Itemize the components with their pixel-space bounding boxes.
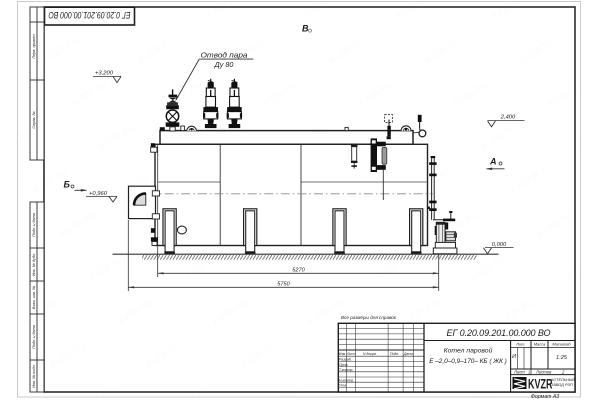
svg-text:Подп.: Подп.	[390, 352, 399, 356]
svg-text:И: И	[512, 354, 516, 360]
svg-text:N докум.: N докум.	[363, 352, 377, 356]
svg-text:KVZR: KVZR	[528, 376, 553, 391]
svg-text:В: В	[302, 24, 309, 34]
svg-text:Лист: Лист	[513, 369, 525, 374]
svg-text:Пров.: Пров.	[339, 363, 348, 367]
svg-text:А: А	[489, 157, 497, 167]
svg-text:Изм: Изм	[339, 352, 346, 356]
svg-text:Справ. №: Справ. №	[32, 111, 36, 128]
svg-text:Отвод пара: Отвод пара	[201, 51, 248, 60]
svg-text:1: 1	[528, 369, 530, 374]
svg-text:Утв.: Утв.	[339, 384, 347, 388]
svg-text:Т.контр.: Т.контр.	[339, 368, 354, 372]
svg-text:Е –2,0–0,9–170– КБ ( ЖК ): Е –2,0–0,9–170– КБ ( ЖК )	[429, 358, 507, 365]
svg-text:Разраб.: Разраб.	[339, 358, 352, 362]
svg-text:Перв. примен.: Перв. примен.	[32, 33, 36, 58]
svg-text:ЕГ 0.20.09.201.00.000 ВО: ЕГ 0.20.09.201.00.000 ВО	[48, 10, 131, 21]
svg-text:Инв. № дубл.: Инв. № дубл.	[32, 253, 36, 276]
svg-text:5750: 5750	[277, 282, 290, 288]
svg-text:2,400: 2,400	[500, 115, 516, 121]
svg-text:КОТЕЛЬНЫЙ: КОТЕЛЬНЫЙ	[551, 378, 575, 382]
svg-text:Масса: Масса	[534, 342, 546, 347]
svg-text:Взам. инв. №: Взам. инв. №	[32, 286, 36, 309]
svg-text:Дата: Дата	[403, 352, 413, 356]
svg-text:Ду 80: Ду 80	[214, 60, 234, 69]
svg-text:Масштаб: Масштаб	[552, 342, 571, 347]
svg-text:Н.контр.: Н.контр.	[339, 378, 354, 382]
svg-text:Лит.: Лит.	[515, 342, 525, 347]
svg-text:ЗАВОД РЭП: ЗАВОД РЭП	[551, 383, 573, 387]
svg-text:ЕГ 0.20.09.201.00.000 ВО: ЕГ 0.20.09.201.00.000 ВО	[447, 328, 551, 338]
svg-text:Котел паровой: Котел паровой	[444, 346, 493, 354]
svg-text:Все размеры для справок: Все размеры для справок	[341, 315, 397, 320]
svg-text:5270: 5270	[292, 267, 305, 273]
svg-text:Формат А3: Формат А3	[531, 394, 559, 400]
svg-text:Листов: Листов	[535, 369, 552, 374]
svg-text:Подп. и дата: Подп. и дата	[32, 325, 36, 349]
svg-text:1:25: 1:25	[556, 355, 568, 361]
svg-text:Инв. № подл.: Инв. № подл.	[32, 364, 36, 388]
svg-text:Подп. и дата: Подп. и дата	[32, 213, 36, 237]
svg-text:Б: Б	[64, 180, 71, 190]
svg-text:+0,960: +0,960	[89, 191, 108, 197]
svg-text:+3,200: +3,200	[95, 71, 114, 77]
svg-text:Лист: Лист	[346, 352, 356, 356]
